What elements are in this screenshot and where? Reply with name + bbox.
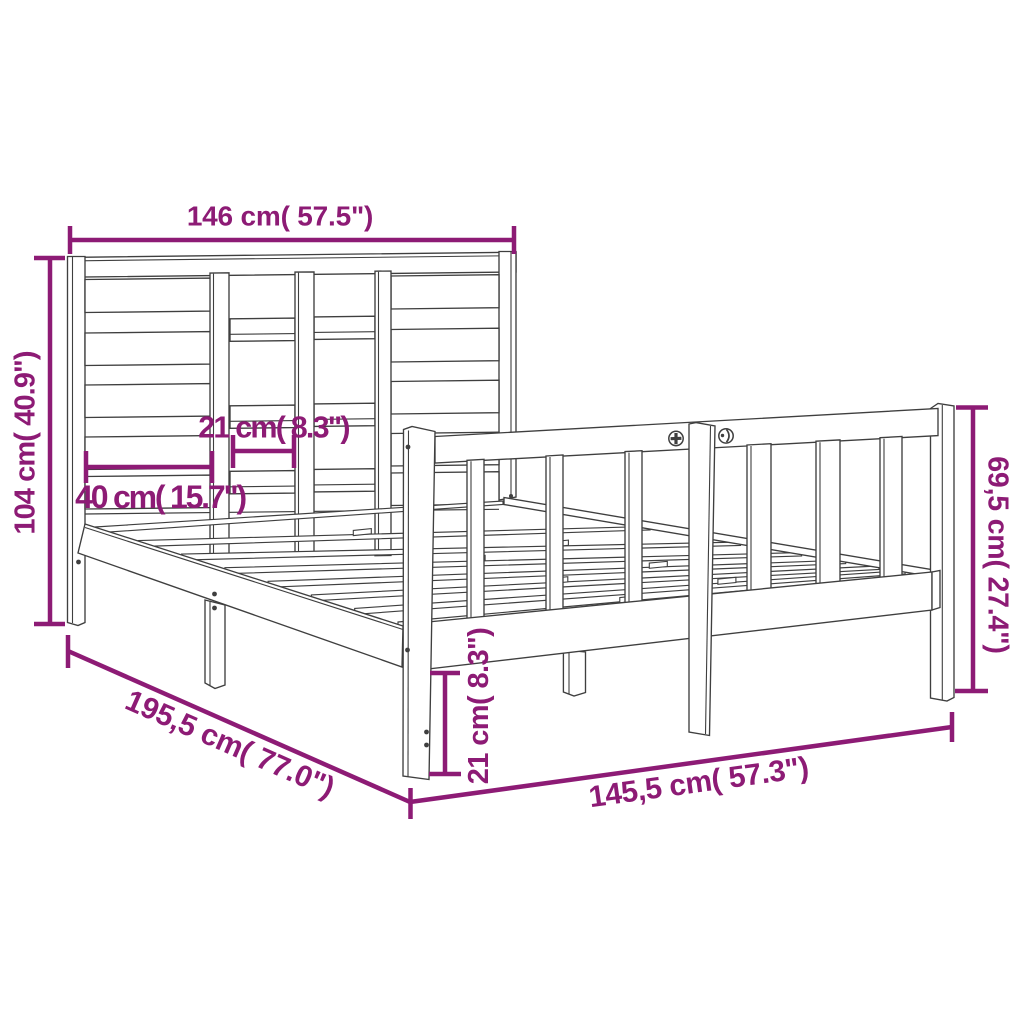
svg-text:104 cm( 40.9"): 104 cm( 40.9") [10, 351, 42, 535]
svg-text:40 cm( 15.7"): 40 cm( 15.7") [75, 479, 246, 515]
svg-text:21 cm( 8.3"): 21 cm( 8.3") [463, 628, 495, 784]
svg-text:146 cm( 57.5"): 146 cm( 57.5") [187, 200, 373, 231]
svg-text:69,5 cm( 27.4"): 69,5 cm( 27.4") [982, 456, 1014, 653]
svg-text:21 cm( 8.3"): 21 cm( 8.3") [198, 411, 349, 445]
